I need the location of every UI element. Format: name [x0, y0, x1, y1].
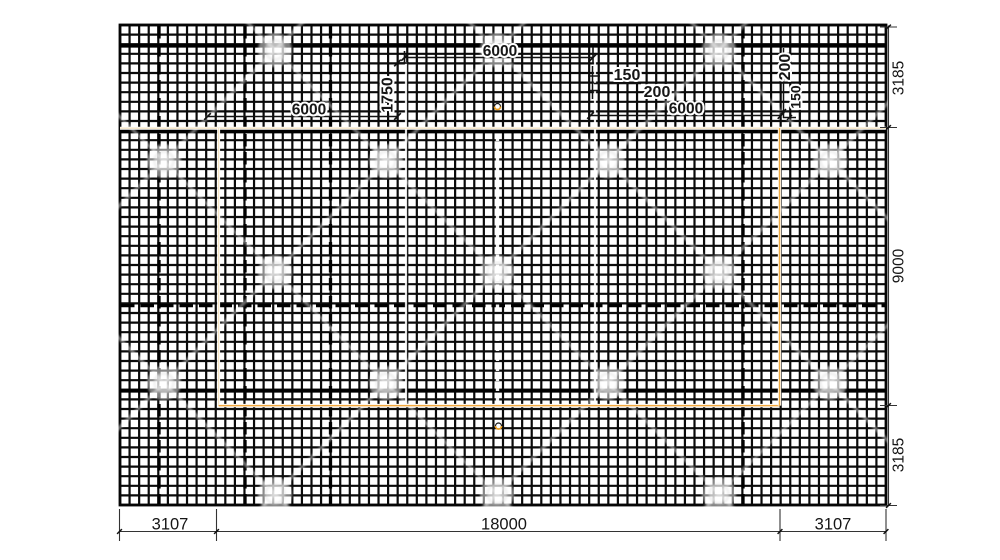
svg-text:150: 150 — [788, 85, 804, 109]
svg-text:6000: 6000 — [483, 43, 517, 60]
svg-text:3107: 3107 — [815, 516, 852, 534]
svg-text:9000: 9000 — [891, 248, 908, 283]
svg-text:6000: 6000 — [292, 102, 326, 119]
svg-text:150: 150 — [614, 67, 641, 84]
svg-text:3185: 3185 — [891, 438, 908, 472]
svg-text:3185: 3185 — [891, 61, 908, 95]
svg-text:18000: 18000 — [481, 516, 527, 534]
svg-text:6000: 6000 — [669, 101, 703, 118]
svg-text:1750: 1750 — [380, 77, 397, 113]
svg-text:200: 200 — [777, 54, 794, 81]
svg-text:200: 200 — [644, 84, 671, 101]
svg-text:3107: 3107 — [152, 516, 189, 534]
